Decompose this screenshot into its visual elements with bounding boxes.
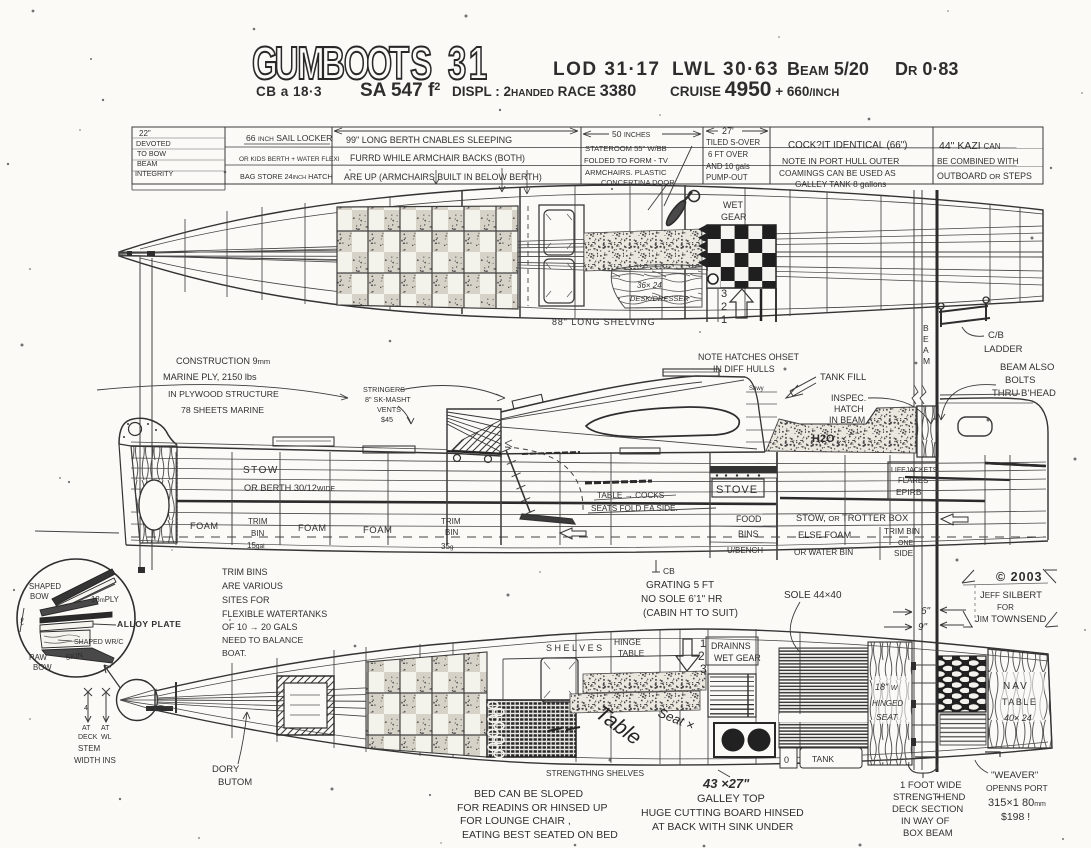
svg-text:LIFEJACKETS: LIFEJACKETS	[891, 467, 938, 474]
svg-text:AT: AT	[82, 725, 91, 732]
svg-text:DORY: DORY	[212, 764, 240, 775]
svg-text:NOTE HATCHES OHSET: NOTE HATCHES OHSET	[698, 352, 800, 362]
svg-text:EATING BEST SEATED ON BED: EATING BEST SEATED ON BED	[462, 829, 618, 841]
svg-text:35g: 35g	[441, 542, 454, 551]
svg-text:IN DIFF HULLS: IN DIFF HULLS	[713, 364, 775, 374]
svg-text:SITES FOR: SITES FOR	[222, 595, 270, 605]
svg-text:AT: AT	[101, 725, 110, 732]
svg-text:U: U	[275, 39, 299, 89]
svg-text:S H E L V E S: S H E L V E S	[546, 643, 602, 653]
svg-text:IN WAY OF: IN WAY OF	[901, 816, 950, 827]
svg-text:BED CAN BE SLOPED: BED CAN BE SLOPED	[474, 788, 584, 800]
svg-text:6": 6"	[921, 606, 931, 617]
svg-text:FOAM: FOAM	[298, 523, 327, 533]
svg-text:ARE VARIOUS: ARE VARIOUS	[222, 581, 283, 591]
svg-text:INTEGRITY: INTEGRITY	[135, 169, 174, 178]
svg-text:STATEROOM 55" W/BB: STATEROOM 55" W/BB	[585, 144, 667, 153]
svg-text:40× 24: 40× 24	[1004, 713, 1032, 723]
svg-text:2: 2	[721, 301, 727, 313]
svg-text:FOAM: FOAM	[190, 521, 219, 531]
svg-text:(CABIN HT TO SUIT): (CABIN HT TO SUIT)	[643, 608, 738, 619]
svg-text:2: 2	[698, 649, 705, 663]
svg-text:STRINGERS: STRINGERS	[363, 385, 405, 394]
svg-text:27': 27'	[722, 126, 734, 136]
svg-text:CONSTRUCTION 9mm: CONSTRUCTION 9mm	[176, 356, 270, 366]
svg-text:LWL 30·63: LWL 30·63	[672, 59, 779, 80]
svg-text:GALLEY TOP: GALLEY TOP	[697, 793, 765, 805]
svg-text:1: 1	[469, 39, 487, 89]
svg-text:B: B	[923, 323, 929, 333]
svg-text:$198 !: $198 !	[1001, 811, 1030, 823]
svg-text:DEVOTED: DEVOTED	[136, 139, 171, 148]
svg-text:TO BOW: TO BOW	[137, 149, 166, 158]
svg-text:TABLE → COCKS: TABLE → COCKS	[597, 491, 665, 500]
svg-text:TRIM BIN: TRIM BIN	[884, 527, 920, 536]
svg-text:3: 3	[448, 39, 466, 89]
svg-text:FLEXIBLE WATERTANKS: FLEXIBLE WATERTANKS	[222, 609, 327, 619]
svg-text:NEED TO BALANCE: NEED TO BALANCE	[222, 635, 303, 645]
svg-text:1: 1	[721, 314, 727, 326]
svg-text:STOW: STOW	[243, 465, 279, 476]
svg-text:STOW, OR TROTTER BOX: STOW, OR TROTTER BOX	[796, 513, 908, 523]
svg-text:PUMP-OUT: PUMP-OUT	[706, 173, 748, 182]
svg-text:FOOD: FOOD	[736, 514, 761, 524]
svg-text:OUTBOARD OR STEPS: OUTBOARD OR STEPS	[937, 171, 1032, 181]
svg-text:IN PLYWOOD STRUCTURE: IN PLYWOOD STRUCTURE	[168, 389, 279, 399]
svg-text:44" KAZI CAN: 44" KAZI CAN	[939, 140, 1001, 152]
svg-text:GRATING 5 FT: GRATING 5 FT	[646, 580, 714, 591]
svg-text:DRAINNS: DRAINNS	[711, 641, 751, 651]
svg-text:43 ×27": 43 ×27"	[702, 776, 750, 791]
svg-text:BE COMBINED WITH: BE COMBINED WITH	[937, 156, 1019, 166]
svg-text:9": 9"	[918, 622, 928, 633]
svg-text:FOR READINS OR HINSED UP: FOR READINS OR HINSED UP	[457, 802, 608, 814]
svg-text:CB a 18·3: CB a 18·3	[256, 84, 322, 99]
svg-text:DR 0·83: DR 0·83	[895, 59, 958, 79]
svg-text:BEAM 5/20: BEAM 5/20	[787, 59, 869, 79]
svg-text:WET GEAR: WET GEAR	[714, 653, 761, 663]
svg-text:EPIRB: EPIRB	[896, 487, 922, 497]
svg-text:$45: $45	[381, 415, 393, 424]
svg-text:6 FT OVER: 6 FT OVER	[708, 150, 749, 159]
svg-text:STRENGTHEND: STRENGTHEND	[893, 792, 965, 803]
svg-text:FLARES: FLARES	[898, 476, 928, 485]
svg-text:H2O: H2O	[812, 433, 835, 445]
svg-text:JEFF SILBERT: JEFF SILBERT	[980, 590, 1042, 601]
svg-text:SHAPED WR/C: SHAPED WR/C	[74, 639, 123, 646]
svg-text:36× 24: 36× 24	[637, 281, 662, 290]
svg-text:TRIM BINS: TRIM BINS	[222, 567, 268, 577]
svg-text:AND 10 gals: AND 10 gals	[706, 162, 750, 171]
svg-text:TRIM: TRIM	[248, 517, 268, 526]
svg-text:99" LONG BERTH CNABLES SLEEP: 99" LONG BERTH CNABLES SLEEPING	[346, 135, 512, 145]
svg-text:AT BACK WITH SINK UNDER: AT BACK WITH SINK UNDER	[652, 821, 794, 833]
svg-text:SEATS FOLD EA SIDE.: SEATS FOLD EA SIDE.	[591, 504, 678, 513]
svg-text:GEAR: GEAR	[721, 212, 747, 222]
svg-text:ALLOY PLATE: ALLOY PLATE	[117, 619, 181, 629]
svg-text:COAMINGS CAN BE USED AS: COAMINGS CAN BE USED AS	[779, 168, 896, 178]
svg-text:WIDTH INS: WIDTH INS	[74, 756, 116, 765]
svg-text:78 SHEETS MARINE: 78 SHEETS MARINE	[181, 405, 264, 415]
svg-text:VENTS: VENTS	[377, 405, 401, 414]
svg-text:ARE UP (ARMCHAIRS BUILT IN BEL: ARE UP (ARMCHAIRS BUILT IN BELOW BERTH)	[344, 172, 542, 182]
svg-text:FOLDED TO FORM - TV: FOLDED TO FORM - TV	[584, 156, 669, 165]
svg-text:NOTE IN PORT HULL OUTER: NOTE IN PORT HULL OUTER	[782, 156, 899, 166]
svg-text:DECK SECTION: DECK SECTION	[892, 804, 963, 815]
svg-text:ARMCHAIRS. PLASTIC: ARMCHAIRS. PLASTIC	[585, 168, 667, 177]
svg-text:STEM: STEM	[78, 744, 101, 753]
svg-text:BEAM: BEAM	[137, 159, 157, 168]
svg-text:FURRD WHILE ARMCHAIR BACKS: FURRD WHILE ARMCHAIR BACKS (BOTH)	[350, 153, 525, 163]
svg-text:MARINE PLY, 2150 lbs: MARINE PLY, 2150 lbs	[163, 372, 257, 382]
svg-text:3: 3	[721, 288, 727, 300]
svg-text:FOR: FOR	[997, 603, 1014, 612]
svg-text:ONE: ONE	[898, 540, 914, 547]
svg-text:SEAT: SEAT	[876, 712, 898, 722]
svg-text:22": 22"	[139, 129, 151, 138]
svg-text:SHAPED: SHAPED	[29, 582, 61, 591]
svg-text:OF 10 → 20 GALS: OF 10 → 20 GALS	[222, 622, 298, 632]
svg-text:SIDE: SIDE	[894, 549, 914, 558]
svg-text:LADDER: LADDER	[984, 344, 1023, 355]
svg-text:HINGED: HINGED	[872, 699, 903, 708]
svg-text:FOR LOUNGE CHAIR ,: FOR LOUNGE CHAIR ,	[460, 815, 571, 827]
svg-text:BINS: BINS	[738, 529, 759, 539]
svg-text:GALLEY TANK 8 gallons: GALLEY TANK 8 gallons	[795, 179, 886, 189]
svg-text:COCK?IT IDENTICAL (66"): COCK?IT IDENTICAL (66")	[788, 140, 907, 151]
svg-text:"WEAVER": "WEAVER"	[991, 770, 1038, 781]
svg-text:BOLTS: BOLTS	[1005, 375, 1035, 386]
svg-text:WL: WL	[101, 734, 112, 741]
svg-text:BEAM ALSO: BEAM ALSO	[1000, 362, 1054, 373]
svg-text:TRIM: TRIM	[441, 517, 461, 526]
svg-text:DESK/DRESSER: DESK/DRESSER	[630, 294, 689, 303]
svg-text:INSPEC.: INSPEC.	[831, 393, 866, 403]
svg-text:WET: WET	[723, 200, 743, 210]
svg-text:E: E	[923, 334, 929, 344]
svg-text:OPENNS PORT: OPENNS PORT	[986, 783, 1048, 793]
svg-text:© 2003: © 2003	[996, 570, 1043, 584]
svg-text:STRENGTHNG SHELVES: STRENGTHNG SHELVES	[546, 768, 645, 778]
svg-text:88" LONG SHELVING: 88" LONG SHELVING	[552, 317, 656, 327]
svg-text:HUGE CUTTING BOARD HINSED: HUGE CUTTING BOARD HINSED	[641, 807, 804, 819]
svg-text:BOAT.: BOAT.	[222, 648, 246, 658]
svg-text:CB: CB	[663, 566, 675, 576]
svg-text:BUTOM: BUTOM	[218, 777, 252, 788]
svg-text:BOW: BOW	[33, 663, 52, 672]
svg-text:ELSE FOAM: ELSE FOAM	[798, 530, 851, 540]
svg-text:OR KIDS BERTH + WATER FLEXI: OR KIDS BERTH + WATER FLEXI	[239, 156, 340, 163]
svg-text:LOD 31·17: LOD 31·17	[553, 59, 660, 80]
svg-text:TANK FILL: TANK FILL	[820, 372, 866, 383]
svg-text:8" SK-MASHT: 8" SK-MASHT	[365, 395, 411, 404]
svg-text:1 FOOT WIDE: 1 FOOT WIDE	[900, 780, 962, 791]
svg-text:DECK: DECK	[78, 734, 98, 741]
svg-text:B: B	[321, 39, 345, 89]
svg-text:4: 4	[84, 705, 88, 712]
svg-text:15gal: 15gal	[247, 541, 265, 550]
svg-text:18mPLY: 18mPLY	[91, 595, 120, 604]
svg-text:0: 0	[784, 755, 789, 765]
svg-text:NO SOLE 6’1" HR: NO SOLE 6’1" HR	[641, 594, 722, 605]
svg-text:HINGE: HINGE	[614, 637, 641, 647]
svg-text:Shwy: Shwy	[749, 386, 764, 392]
svg-text:TILED S-OVER: TILED S-OVER	[706, 138, 761, 147]
svg-text:SOLE 44×40: SOLE 44×40	[784, 590, 842, 601]
svg-text:NAV: NAV	[1003, 681, 1029, 692]
svg-text:BIN: BIN	[251, 529, 265, 538]
svg-text:THRU B’HEAD: THRU B’HEAD	[992, 388, 1056, 399]
svg-text:HATCH: HATCH	[834, 404, 864, 414]
svg-text:RAW: RAW	[29, 653, 48, 662]
svg-text:BOX BEAM: BOX BEAM	[903, 828, 953, 839]
svg-text:OR WATER BIN: OR WATER BIN	[794, 548, 853, 557]
svg-text:TABLE: TABLE	[1002, 697, 1037, 707]
svg-text:TANK: TANK	[812, 754, 834, 764]
svg-text:C/B: C/B	[988, 330, 1004, 341]
svg-text:SA 547 f2: SA 547 f2	[360, 80, 440, 101]
svg-text:A: A	[923, 345, 929, 355]
svg-text:FOAM: FOAM	[363, 525, 392, 536]
svg-text:BOW: BOW	[30, 592, 49, 601]
svg-text:STOVE: STOVE	[716, 484, 758, 496]
svg-text:M: M	[923, 356, 930, 366]
svg-text:U/BENCH: U/BENCH	[727, 546, 763, 555]
svg-text:BAG STORE 24INCH HATCH: BAG STORE 24INCH HATCH	[240, 172, 333, 181]
svg-text:BIN: BIN	[445, 528, 459, 537]
svg-text:JIM TOWNSEND: JIM TOWNSEND	[975, 614, 1046, 625]
svg-text:TABLE: TABLE	[618, 648, 645, 658]
